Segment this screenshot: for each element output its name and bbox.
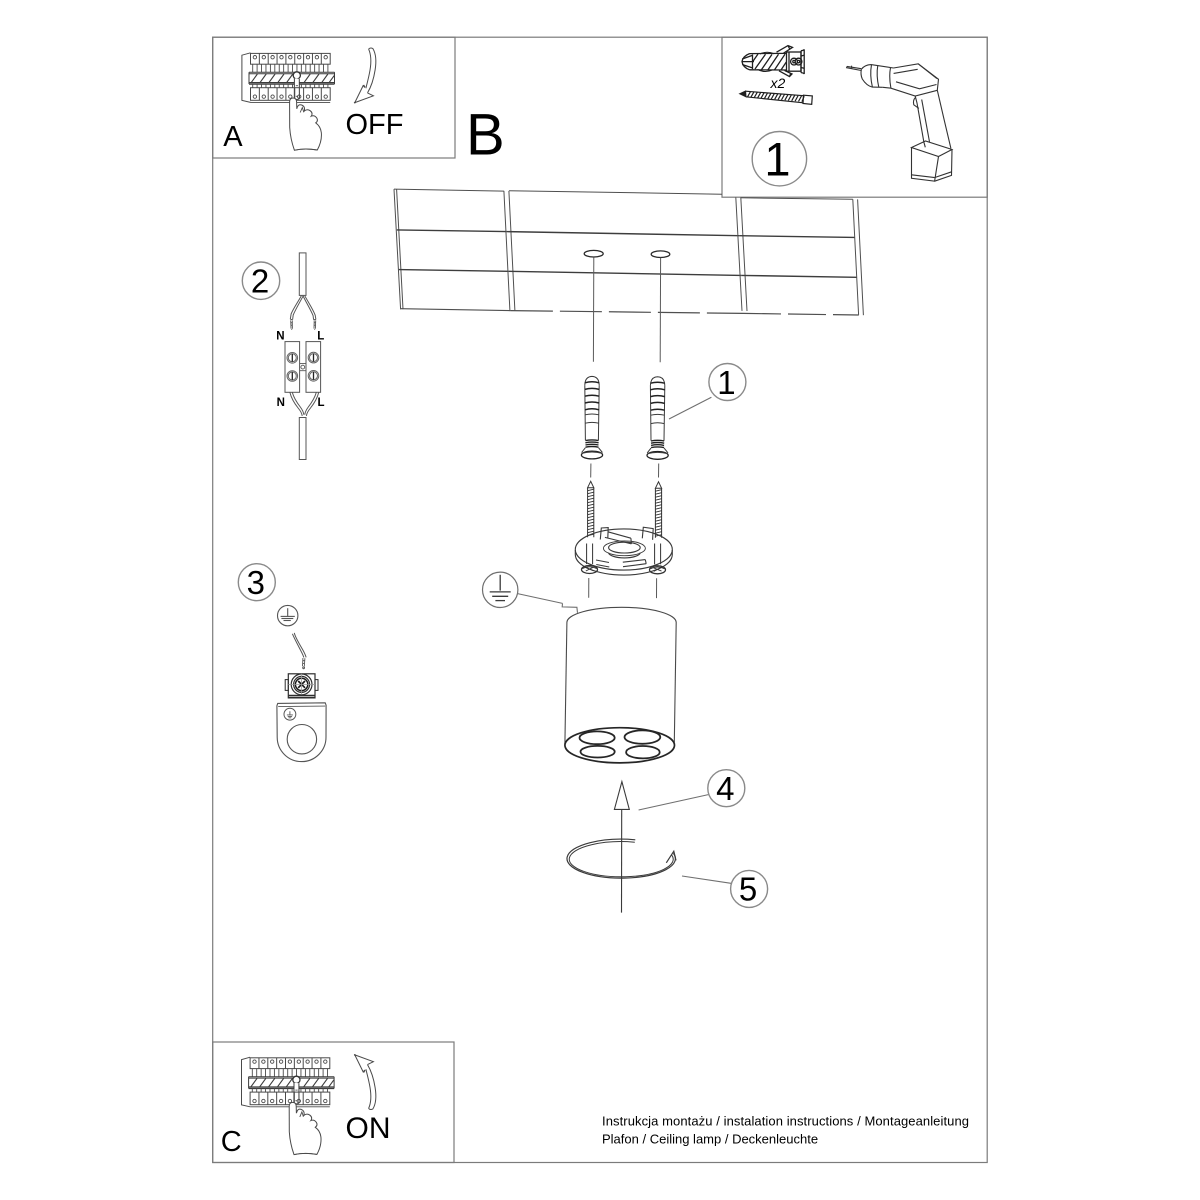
svg-text:ON: ON: [346, 1112, 391, 1145]
svg-text:x2: x2: [770, 75, 786, 91]
svg-text:B: B: [466, 103, 505, 168]
svg-text:4: 4: [716, 770, 734, 807]
svg-text:N: N: [277, 397, 285, 409]
svg-text:C: C: [221, 1126, 242, 1158]
svg-text:N: N: [276, 330, 284, 342]
svg-text:1: 1: [717, 364, 735, 401]
svg-text:3: 3: [247, 564, 265, 601]
svg-text:Instrukcja montażu / instalati: Instrukcja montażu / instalation instruc…: [602, 1114, 969, 1129]
svg-text:5: 5: [739, 871, 757, 908]
svg-text:1: 1: [764, 133, 790, 186]
svg-text:2: 2: [251, 263, 269, 300]
svg-text:L: L: [318, 397, 325, 409]
svg-text:Plafon / Ceiling lamp / Decken: Plafon / Ceiling lamp / Deckenleuchte: [602, 1132, 818, 1147]
svg-text:OFF: OFF: [346, 109, 404, 141]
svg-text:L: L: [317, 330, 324, 342]
svg-text:A: A: [223, 121, 243, 153]
